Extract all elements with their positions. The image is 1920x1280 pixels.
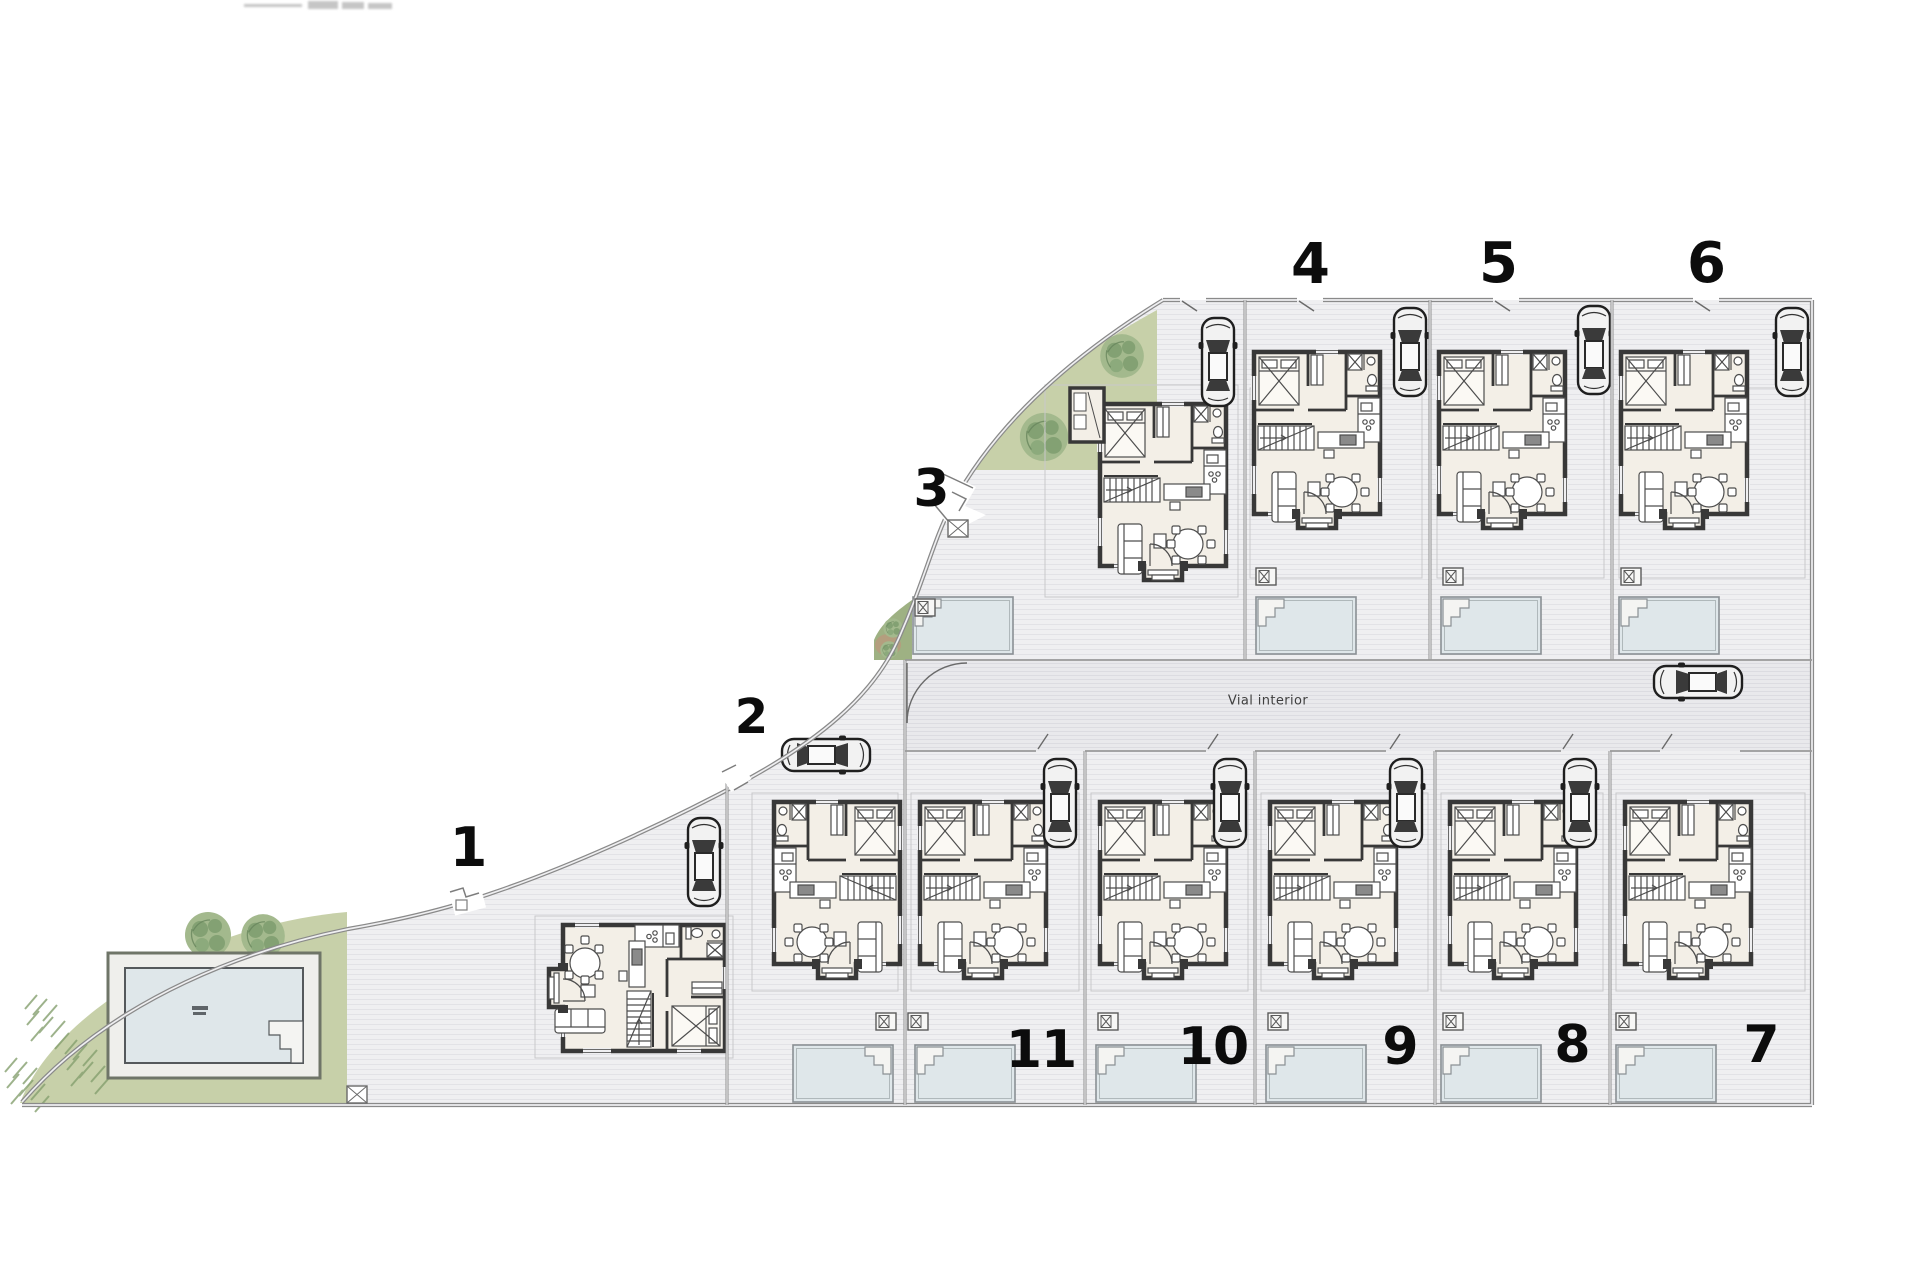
plot-label-11: 11: [1006, 1024, 1076, 1076]
car-icon: [782, 736, 870, 775]
house-plot-8: [1449, 801, 1578, 979]
site-plan-drawing: [0, 0, 1920, 1280]
car-icon: [1391, 308, 1430, 396]
house-plot-7: [1624, 801, 1753, 979]
pool-plot-5: [1441, 597, 1541, 654]
plot-label-9: 9: [1382, 1021, 1417, 1073]
plot-label-1: 1: [450, 821, 487, 875]
tree-icon: [1100, 334, 1144, 378]
house-plot-11: [919, 801, 1048, 979]
car-icon: [1561, 759, 1600, 847]
plot-label-5: 5: [1479, 236, 1517, 292]
pool-plot-2: [793, 1045, 893, 1102]
house-plot-6: [1620, 351, 1749, 529]
house-plot-5: [1438, 351, 1567, 529]
plot-label-10: 10: [1178, 1021, 1248, 1073]
site-plan: 1 2 3 4 5 6 7 8 9 10 11 Vial interior: [0, 0, 1920, 1280]
car-icon: [1041, 759, 1080, 847]
road-label: Vial interior: [1228, 694, 1308, 709]
pool-plot-8: [1441, 1045, 1541, 1102]
house-plot-9: [1269, 801, 1398, 979]
car-icon: [1211, 759, 1250, 847]
plot-label-4: 4: [1291, 237, 1329, 293]
car-icon: [1199, 318, 1238, 406]
plot-label-7: 7: [1743, 1019, 1778, 1071]
tree-icon: [1020, 413, 1068, 461]
house-plot-1: [549, 924, 727, 1053]
car-icon: [1575, 306, 1614, 394]
house-plot-2: [773, 801, 902, 979]
scrub-vegetation: [25, 995, 69, 1049]
pool-plot-11: [915, 1045, 1015, 1102]
car-icon: [1773, 308, 1812, 396]
plot-label-2: 2: [735, 693, 767, 741]
pool-plot-6: [1619, 597, 1719, 654]
pool-plot-9: [1266, 1045, 1366, 1102]
pool-plot-4: [1256, 597, 1356, 654]
house-plot-10: [1099, 801, 1228, 979]
plot-label-8: 8: [1554, 1019, 1589, 1071]
car-icon: [1654, 663, 1742, 702]
tree-icon: [185, 912, 231, 958]
pool-plot-7: [1616, 1045, 1716, 1102]
house-plot-4: [1253, 351, 1382, 529]
car-icon: [1387, 759, 1426, 847]
plot-label-3: 3: [913, 463, 948, 515]
car-icon: [685, 818, 724, 906]
cropped-watermark: [238, 0, 394, 12]
plot-label-6: 6: [1687, 236, 1725, 292]
